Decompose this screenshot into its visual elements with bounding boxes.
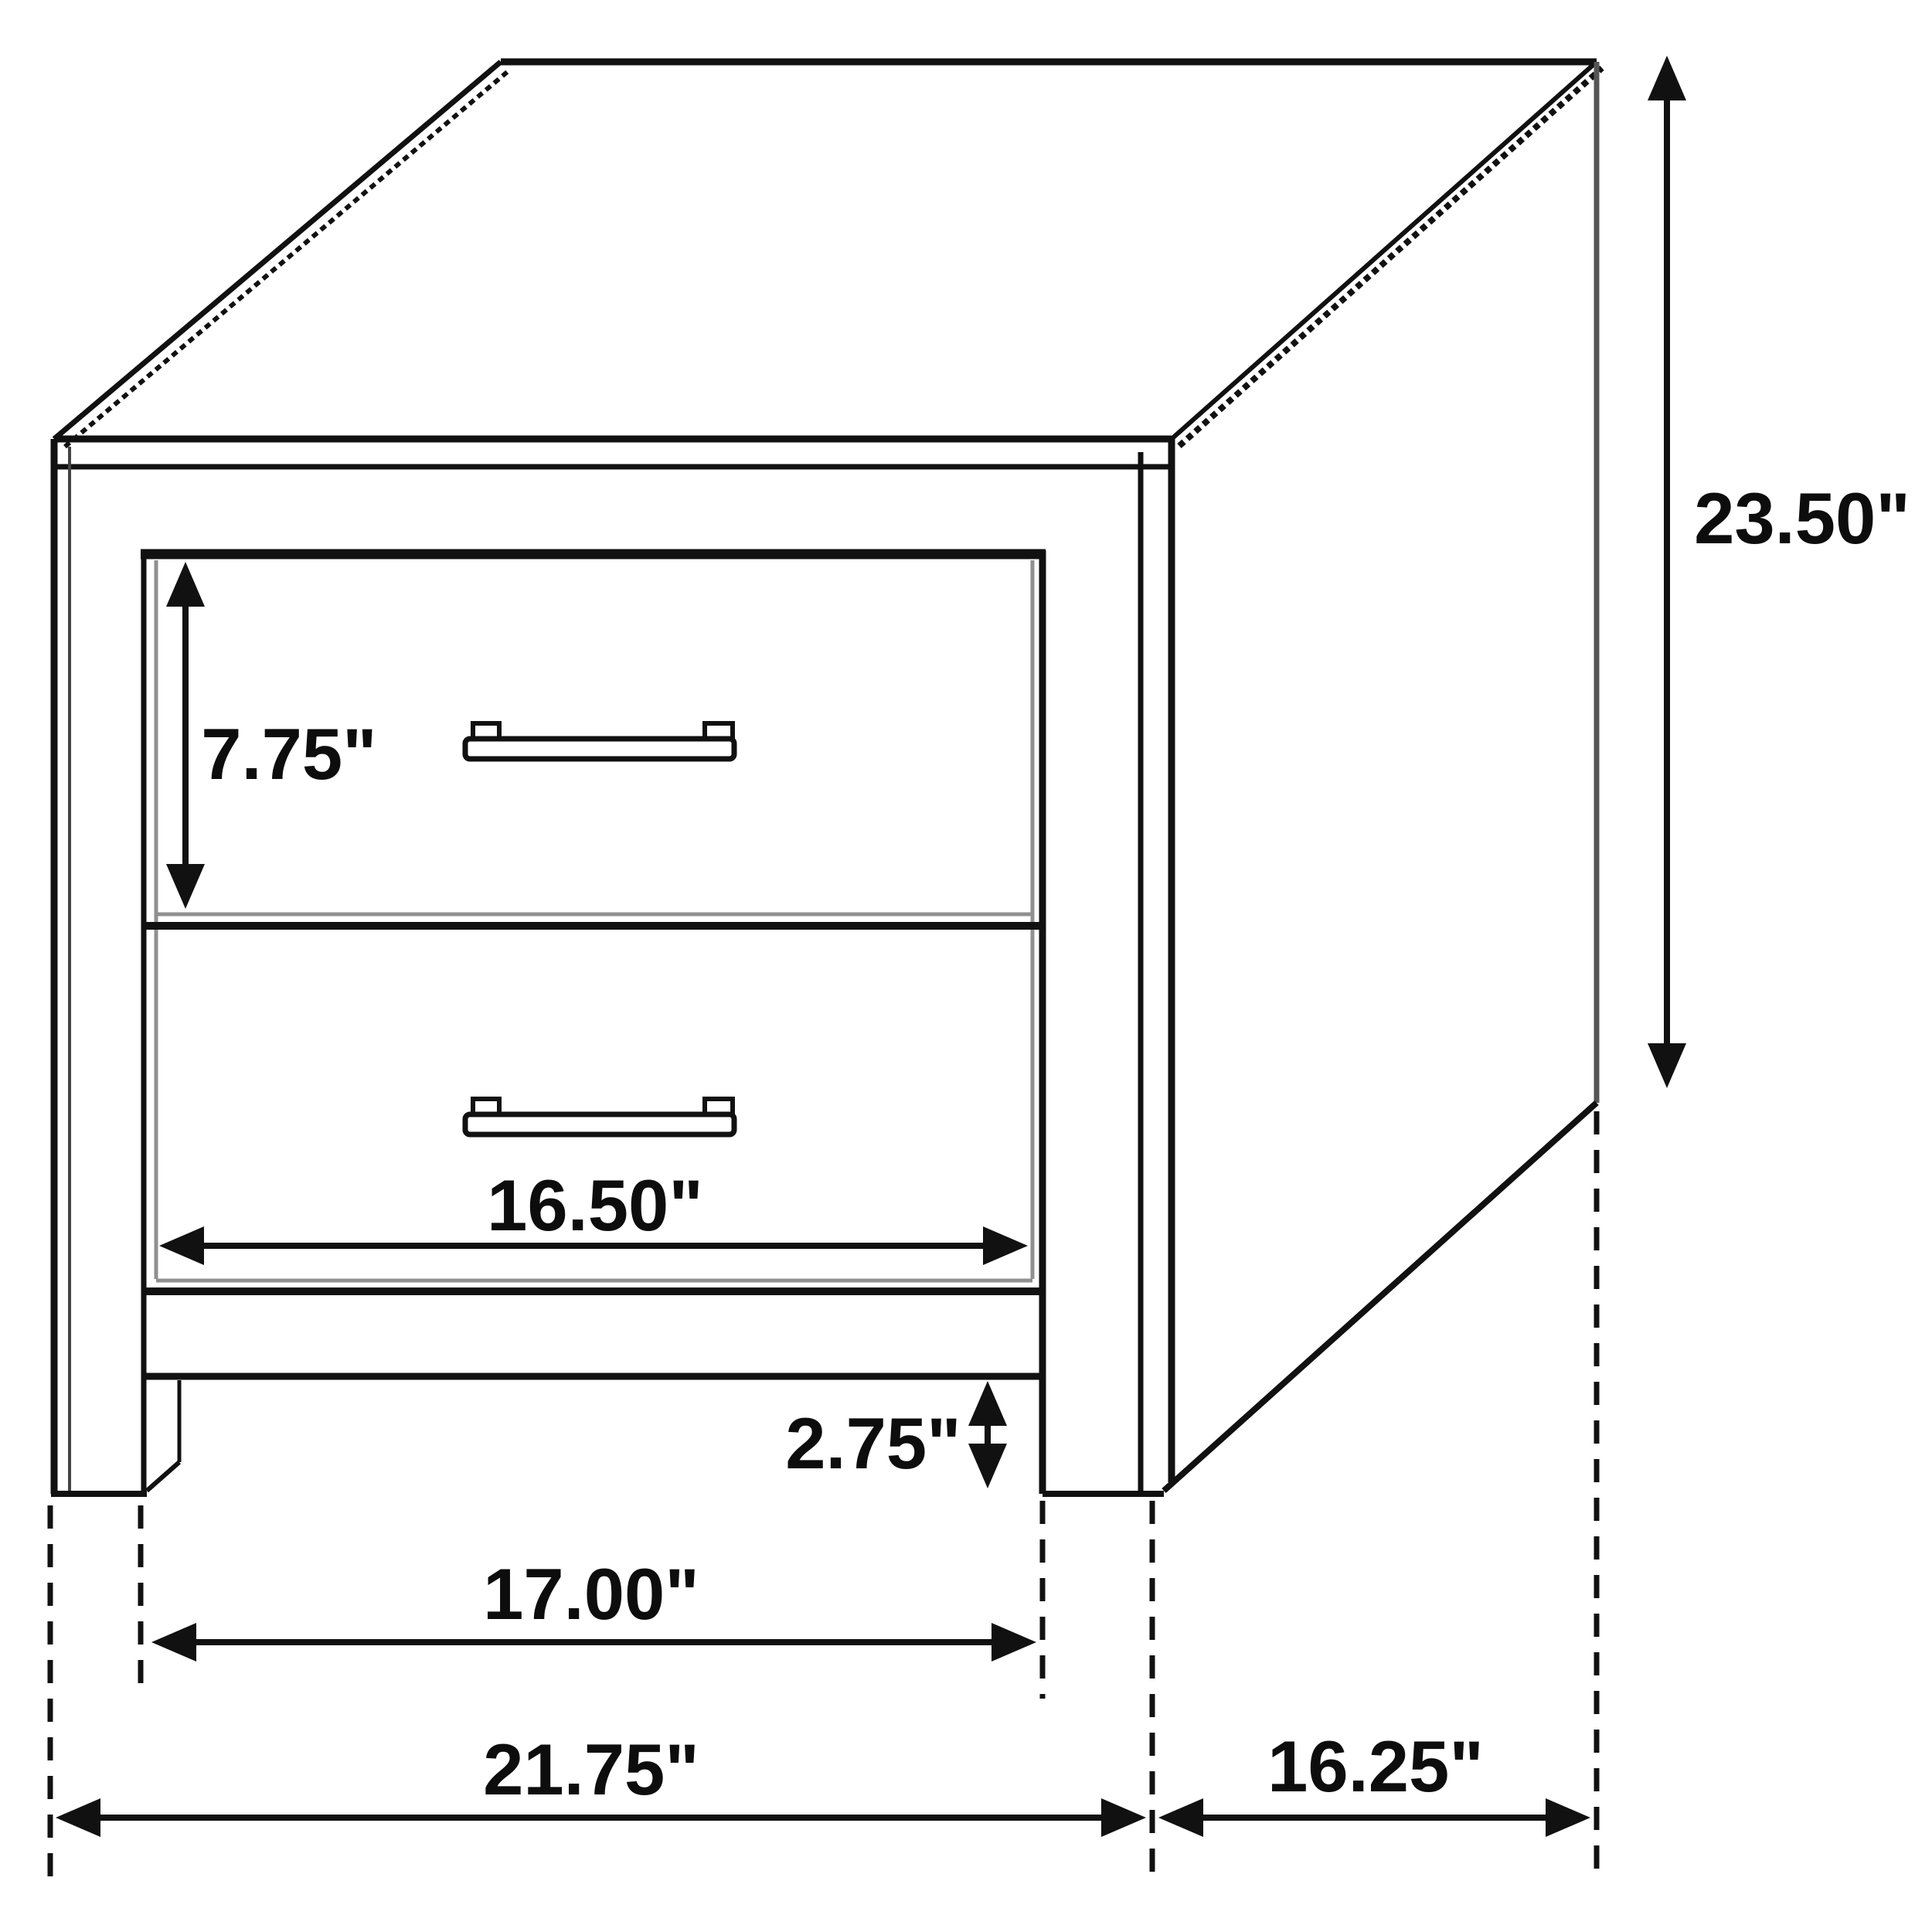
top-left-receding-edge <box>54 62 501 439</box>
dimension-label: 16.25" <box>1267 1726 1484 1807</box>
dimension-label: 23.50" <box>1694 478 1910 559</box>
left-leg-side-bottom-edge <box>147 1462 179 1491</box>
arrowhead-left-icon <box>151 1623 196 1662</box>
arrowhead-down-icon <box>166 864 205 909</box>
dimension-drawer-face-height: 7.75" <box>166 562 377 909</box>
dimension-drawer-width: 16.50" <box>159 1165 1028 1265</box>
dimension-label: 7.75" <box>201 713 377 794</box>
arrowhead-down-icon <box>1648 1043 1686 1088</box>
arrowhead-left-icon <box>56 1798 100 1837</box>
dimension-label: 16.50" <box>487 1165 703 1246</box>
dimension-foot-height: 2.75" <box>785 1381 1007 1488</box>
arrowhead-up-icon <box>968 1381 1007 1426</box>
front-face-frame <box>54 439 1172 1494</box>
top-left-receding-edge-hatch <box>65 70 510 447</box>
arrowhead-left-icon <box>1158 1798 1203 1837</box>
nightstand-dimension-diagram: 7.75" 23.50" 16.50" 2.75" 17 <box>0 0 1932 1932</box>
upper-drawer-handle <box>465 723 734 759</box>
arrowhead-up-icon <box>166 562 205 607</box>
handle-bar-icon <box>465 1114 734 1134</box>
arrowhead-right-icon <box>1546 1798 1590 1837</box>
dimension-label: 21.75" <box>483 1729 699 1810</box>
dimension-overall-height: 23.50" <box>1648 56 1910 1088</box>
arrowhead-up-icon <box>1648 56 1686 100</box>
arrowhead-down-icon <box>968 1444 1007 1488</box>
dimension-label: 17.00" <box>483 1553 699 1634</box>
arrowhead-left-icon <box>159 1226 204 1265</box>
arrowhead-right-icon <box>992 1623 1036 1662</box>
dimension-depth: 16.25" <box>1158 1726 1590 1837</box>
lower-drawer-handle <box>465 1099 734 1134</box>
top-right-receding-edge <box>1172 62 1597 439</box>
dimension-width-between-legs: 17.00" <box>151 1553 1036 1662</box>
dimension-annotations: 7.75" 23.50" 16.50" 2.75" 17 <box>56 56 1910 1837</box>
side-panel <box>1164 62 1597 1491</box>
arrowhead-right-icon <box>983 1226 1028 1265</box>
arrowhead-right-icon <box>1101 1798 1146 1837</box>
dimension-label: 2.75" <box>785 1403 961 1484</box>
dimension-overall-width: 21.75" <box>56 1729 1146 1837</box>
side-bottom-edge <box>1164 1103 1597 1491</box>
top-right-receding-edge-hatch <box>1179 68 1602 446</box>
dimension-diagram-page: 7.75" 23.50" 16.50" 2.75" 17 <box>0 0 1932 1932</box>
top-face <box>54 62 1602 467</box>
legs <box>51 1380 1164 1494</box>
handle-bar-icon <box>465 739 734 759</box>
